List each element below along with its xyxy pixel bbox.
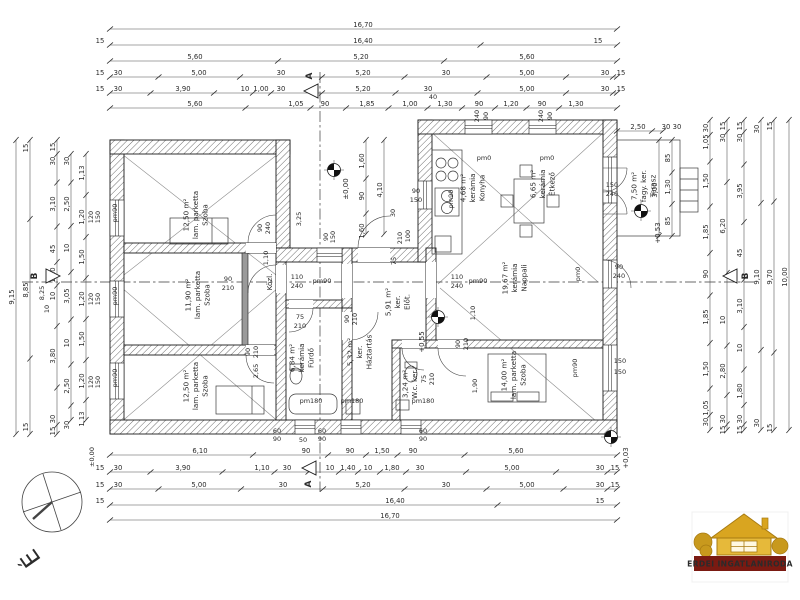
dim-label: 9,15 (8, 289, 16, 304)
dim-label: 1,50 (78, 249, 86, 264)
dim-label: 30 (753, 125, 761, 134)
dim-label: 15 (96, 464, 105, 472)
dim-label: 30 (601, 69, 610, 77)
room-label: 6,65 m² (529, 170, 538, 198)
dim-label: 15 (766, 122, 774, 131)
dim-label: 10 (63, 244, 71, 253)
dim-label: 15 (594, 37, 603, 45)
door-opening (276, 265, 286, 293)
room-label: kerámia (468, 173, 477, 202)
dim-label: 10 (719, 316, 727, 325)
room-label: Előt. (403, 294, 412, 310)
spec-label: pm0 (574, 267, 582, 282)
dim-label: 1,30 (664, 179, 672, 194)
dim-label: 30 (719, 134, 727, 143)
level-label: +0,53 (654, 222, 662, 243)
room-label: 4,68 m² (459, 174, 468, 202)
dim-label: 1,05 (288, 100, 303, 108)
dim-label: 30 (596, 464, 605, 472)
spec-label: 60 (273, 427, 281, 435)
dim-label: 15 (596, 497, 605, 505)
dim-label: 5,20 (355, 69, 370, 77)
spec-label: 240 (606, 190, 618, 198)
dim-label: 1,60 (358, 223, 366, 238)
dim-label: 1,60 (358, 153, 366, 168)
spec-label: pm0 (540, 154, 555, 162)
spec-label: pm90 (313, 277, 332, 285)
window (317, 248, 342, 262)
dim-label: 90 (321, 100, 330, 108)
room-label: Nappali (520, 264, 529, 291)
room-label: W.c. ker. (410, 369, 419, 399)
wall (276, 248, 432, 262)
dim-label: 10 (326, 464, 335, 472)
spec-label: 210 (222, 284, 234, 292)
dim-label: 2,80 (719, 363, 727, 378)
spec-label: 210 (351, 313, 359, 325)
spec-label: 60 (318, 427, 326, 435)
dim-label: 30 (279, 481, 288, 489)
room-label: 5,91 m² (384, 288, 393, 316)
room-label: Konyha (478, 175, 487, 202)
dim-label: 5,00 (191, 481, 206, 489)
dim-label: 15 (96, 481, 105, 489)
dim-label: 10 (241, 85, 250, 93)
dim-label: 2,50 (630, 123, 645, 131)
dim-label: 90 (475, 100, 484, 108)
spec-label: 90 (412, 187, 420, 195)
dim-label: 3,10 (736, 298, 744, 313)
room-label: ker. (393, 296, 402, 309)
dim-label: 3,90 (175, 85, 190, 93)
spec-label: pm90 (571, 359, 579, 378)
level-label: +0,55 (418, 331, 426, 352)
window (341, 420, 361, 434)
spec-label: 240 (537, 110, 545, 122)
spec-label: 90 (482, 112, 490, 120)
door-opening (289, 300, 313, 308)
spec-label: 90 (256, 224, 264, 232)
dim-label: 1,20 (78, 291, 86, 306)
dim-label: 30 (114, 464, 123, 472)
dim-label: 1,85 (702, 224, 710, 239)
spec-label: 150 (614, 357, 626, 365)
dim-label: 90 (302, 447, 311, 455)
dim-label: 15 (49, 427, 57, 436)
dim-label: 10 (49, 292, 57, 301)
spec-label: 90 (343, 315, 351, 323)
spec-label: 75 (296, 313, 304, 321)
door-opening (342, 264, 352, 298)
spec-label: 210 (396, 232, 404, 244)
room-label: fagy. ker. (639, 170, 648, 202)
room-label: 12,50 m² (182, 370, 191, 403)
spec-label: 240 (291, 282, 303, 290)
dim-label: 5,60 (508, 447, 523, 455)
spec-label: 150 (410, 196, 422, 204)
spec-label: 150 (94, 211, 102, 223)
dim-label: 1,85 (702, 309, 710, 324)
spec-label: 240 (473, 110, 481, 122)
dim-label: 1,00 (253, 85, 268, 93)
spec-label: 150 (606, 181, 618, 189)
dim-label: 4,10 (376, 182, 384, 197)
dim-label: 1,50 (702, 173, 710, 188)
dim-label: 15 (736, 426, 744, 435)
spec-label: 90 (273, 435, 281, 443)
dim-label: 5,60 (187, 100, 202, 108)
dim-label: 16,70 (380, 512, 399, 520)
dim-label: 85 (664, 217, 672, 226)
dim-label: 1,13 (78, 411, 86, 426)
room-label: 11,90 m² (184, 279, 193, 312)
door-opening (246, 243, 276, 253)
dim-label: 90 (702, 270, 710, 279)
spec-label: 90 (318, 435, 326, 443)
window (295, 420, 315, 434)
dim-label: 15 (96, 69, 105, 77)
spec-label: 1,10 (469, 306, 477, 320)
spec-label: 75 (390, 257, 398, 265)
spec-label: 150 (94, 293, 102, 305)
spec-label: 90 (419, 435, 427, 443)
dim-label: 1,50 (702, 361, 710, 376)
dim-label: 30 (114, 69, 123, 77)
spec-label: ±0,00 (88, 447, 96, 467)
door-opening (358, 248, 390, 262)
dim-label: 5,00 (504, 464, 519, 472)
room-label: Szoba (201, 375, 210, 397)
spec-label: 100 (404, 230, 412, 242)
spec-label: 90 (454, 340, 462, 348)
dim-label: 45 (49, 245, 57, 254)
room-label: Étkező (548, 172, 557, 196)
dim-label: 5,00 (191, 69, 206, 77)
dim-label: 9,70 (766, 269, 774, 284)
dim-label: 5,60 (187, 53, 202, 61)
dim-label: 30 (283, 464, 292, 472)
room-label: 12,50 m² (182, 199, 191, 232)
spec-label: pm0 (477, 154, 492, 162)
dim-label: 30 (673, 123, 682, 131)
dim-label: 6,10 (192, 447, 207, 455)
spec-label: 8,25 (38, 286, 46, 300)
spec-label: 150 (614, 368, 626, 376)
dim-label: 15 (96, 37, 105, 45)
dim-label: 1,20 (78, 373, 86, 388)
dim-label: 15 (22, 423, 30, 432)
dim-label: 30 (63, 421, 71, 430)
spec-label: 2,65 (252, 364, 260, 378)
dim-label: 1,13 (78, 165, 86, 180)
dim-label: 5,20 (353, 53, 368, 61)
spec-label: pm90 (447, 190, 455, 209)
dim-label: 15 (49, 143, 57, 152)
dim-label: 1,30 (568, 100, 583, 108)
section-letter: A (304, 480, 314, 487)
dim-label: 30 (114, 481, 123, 489)
spec-label: 150 (329, 231, 337, 243)
dim-label: 15 (96, 85, 105, 93)
spec-label: pm90 (469, 277, 488, 285)
dim-label: 1,20 (78, 209, 86, 224)
dim-label: 1,00 (402, 100, 417, 108)
room-label: 14,00 m² (500, 359, 509, 392)
dim-label: 16,40 (385, 497, 404, 505)
dim-label: 1,05 (702, 400, 710, 415)
dim-label: 1,20 (503, 100, 518, 108)
spec-label: pm90 (111, 287, 119, 306)
dim-label: 9,10 (753, 269, 761, 284)
dim-label: 30 (49, 157, 57, 166)
spec-label: 3,25 (295, 212, 303, 226)
dim-label: 1,10 (254, 464, 269, 472)
dim-label: 15 (766, 424, 774, 433)
spec-label: 210 (462, 338, 470, 350)
dim-label: 90 (358, 192, 366, 201)
dim-label: 10 (63, 339, 71, 348)
spec-label: pm180 (341, 397, 364, 405)
spec-label: pm180 (300, 397, 323, 405)
dim-label: 3,90 (175, 464, 190, 472)
spec-label: 50 (299, 436, 307, 444)
room-label: kerámia (510, 263, 519, 292)
dim-label: 5,00 (519, 85, 534, 93)
spec-label: 210 (252, 346, 260, 358)
room-label: lam. parketta (509, 351, 518, 399)
spec-label: 90 (224, 275, 232, 283)
dim-label: 30 (442, 69, 451, 77)
dim-label: 90 (346, 447, 355, 455)
logo: ERDEI INGATLANIRODA (687, 512, 793, 582)
dim-label: 2,50 (63, 196, 71, 211)
spec-label: 240 (264, 222, 272, 234)
spec-label: 60 (419, 427, 427, 435)
dim-label: 30 (277, 69, 286, 77)
spec-label: 210 (428, 373, 436, 385)
dim-label: 5,20 (355, 85, 370, 93)
room-label: Háztartás (365, 334, 374, 369)
dim-label: 30 (736, 134, 744, 143)
dim-label: 1,40 (340, 464, 355, 472)
spec-label: 40 (429, 93, 437, 101)
room-label: Fürdő (307, 348, 316, 368)
dim-label: 90 (409, 447, 418, 455)
dim-label: 15 (719, 426, 727, 435)
dim-label: 30 (702, 418, 710, 427)
dim-label: 5,00 (519, 69, 534, 77)
door-opening (426, 262, 436, 298)
room-label: ker. (355, 346, 364, 359)
dim-label: 1,30 (437, 100, 452, 108)
room-label: lam. parketta (191, 191, 200, 239)
spec-label: 1,10 (262, 251, 270, 265)
spec-label: pm180 (412, 397, 435, 405)
room-label: 19,67 m² (501, 262, 510, 295)
dim-label: 30 (442, 481, 451, 489)
dim-label: 3,05 (63, 288, 71, 303)
logo-chimney-icon (762, 518, 768, 529)
dim-label: 2,50 (63, 378, 71, 393)
level-label: ±0,00 (342, 178, 350, 199)
dim-label: 1,85 (359, 100, 374, 108)
room-label: kerámia (297, 343, 306, 372)
dim-label: 30 (719, 415, 727, 424)
partition-wall (242, 253, 248, 345)
dim-label: 15 (611, 464, 620, 472)
spec-label: 10 (43, 305, 51, 313)
dim-label: 15 (611, 481, 620, 489)
dim-label: 1,05 (702, 134, 710, 149)
dim-label: 5,00 (519, 481, 534, 489)
level-label: +0,03 (622, 447, 630, 468)
dim-label: 3,10 (49, 196, 57, 211)
spec-label: pm90 (111, 369, 119, 388)
dim-label: 3,80 (49, 348, 57, 363)
room-label: 7,50 m² (630, 172, 639, 200)
spec-label: 240 (451, 282, 463, 290)
dim-label: 1,50 (374, 447, 389, 455)
dim-label: 1,80 (384, 464, 399, 472)
dim-label: 15 (736, 122, 744, 131)
dim-label: 5,60 (519, 53, 534, 61)
section-letter: B (30, 272, 40, 279)
room-label: lam. parketta (193, 271, 202, 319)
room-label: lam. parketta (191, 362, 200, 410)
spec-label: 110 (291, 273, 303, 281)
wall (110, 140, 290, 154)
logo-company-name: ERDEI INGATLANIRODA (687, 560, 793, 569)
dim-label: 1,80 (736, 383, 744, 398)
spec-label: 150 (94, 376, 102, 388)
room-label: Közl. (265, 274, 274, 291)
dim-label: 5,20 (355, 481, 370, 489)
spec-label: pm90 (111, 204, 119, 223)
dim-label: 10 (736, 344, 744, 353)
logo-tree-icon (700, 545, 712, 557)
dim-label: 30 (49, 415, 57, 424)
dim-label: 15 (96, 497, 105, 505)
spec-label: 90 (615, 263, 623, 271)
wall (276, 140, 290, 248)
room-label: 5,32 m² (346, 338, 355, 366)
room-label: 6,84 m² (288, 344, 297, 372)
window (418, 181, 432, 209)
room-label: Szoba (519, 364, 528, 386)
dim-label: 30 (114, 85, 123, 93)
dim-label: 10,00 (781, 267, 789, 286)
floor-plan-drawing: 16,701516,40155,605,205,6015305,00305,20… (0, 0, 800, 600)
dim-label: 30 (63, 157, 71, 166)
dim-label: 85 (664, 154, 672, 163)
room-label: kerámia (538, 169, 547, 198)
wall (418, 120, 617, 134)
dim-label: 3,95 (736, 183, 744, 198)
room-label: Szoba (203, 284, 212, 306)
logo-tree-icon (772, 538, 788, 554)
dim-label: 1,50 (78, 331, 86, 346)
dim-label: 15 (617, 69, 626, 77)
dim-label: 45 (736, 249, 744, 258)
dim-label: 16,40 (353, 37, 372, 45)
dim-label: 15 (617, 85, 626, 93)
spec-label: 90 (244, 348, 252, 356)
dim-label: 15 (22, 144, 30, 153)
spec-label: 110 (451, 273, 463, 281)
dim-label: 16,70 (353, 21, 372, 29)
dim-label: 30 (662, 123, 671, 131)
dim-label: 15 (719, 122, 727, 131)
dim-label: 10 (364, 464, 373, 472)
dim-label: 30 (277, 85, 286, 93)
dim-label: 8,85 (22, 282, 30, 297)
dim-label: 30 (424, 85, 433, 93)
dim-label: 6,20 (719, 218, 727, 233)
wall (110, 420, 617, 434)
spec-label: 30 (389, 209, 397, 217)
dim-label: 30 (736, 415, 744, 424)
dim-label: 30 (416, 464, 425, 472)
dim-label: 30 (601, 85, 610, 93)
spec-label: 90 (546, 112, 554, 120)
spec-label: 240 (613, 272, 625, 280)
dim-label: 30 (702, 124, 710, 133)
room-label: 3,24 m² (400, 370, 409, 398)
spec-label: 75 (420, 375, 428, 383)
room-label: Szoba (201, 204, 210, 226)
section-letter: A (305, 72, 315, 79)
section-letter: B (741, 272, 751, 279)
spec-label: 1,90 (471, 379, 479, 393)
spec-label: 210 (294, 322, 306, 330)
dim-label: 30 (753, 419, 761, 428)
room-label: Terasz (649, 175, 658, 199)
dim-label: 90 (538, 100, 547, 108)
dim-label: 30 (596, 481, 605, 489)
